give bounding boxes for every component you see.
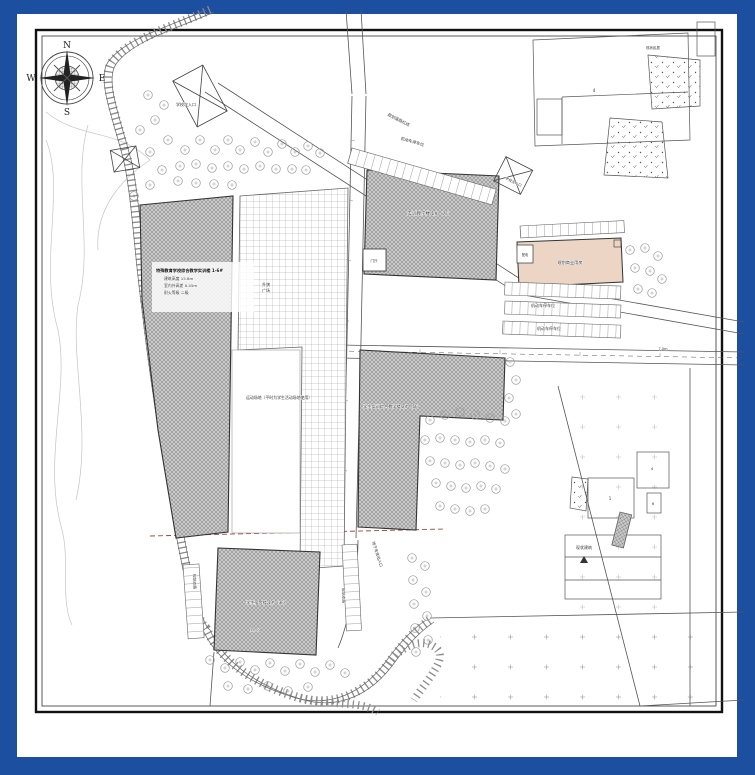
- label-parking-r2: 机动车停车位: [537, 325, 561, 331]
- blueprint-page: N S W E: [0, 0, 755, 775]
- label-annex-pink: 配电: [522, 252, 529, 257]
- label-parking-top: 机动车停车位: [400, 135, 425, 147]
- label-road-right: 规划支路: [341, 588, 347, 604]
- site-plan-svg: N S W E: [0, 0, 755, 775]
- label-road-dim: 7.0m: [659, 347, 669, 351]
- label-building-a-3: 室内外高差 0.45m: [164, 283, 197, 288]
- label-parcel-num-tr: 4: [593, 88, 596, 93]
- label-building-a-1: 特殊教育学校综合教学实训楼 1-6#: [156, 267, 223, 274]
- survey-grid-marks-2: [560, 370, 686, 610]
- compass-w: W: [26, 74, 36, 84]
- label-annex-b: 门厅: [371, 258, 379, 263]
- terrain-contours: [46, 112, 150, 625]
- existing-parcels-north: [533, 22, 715, 178]
- label-road-redline: 规划道路红线: [387, 111, 411, 127]
- sports-field: [232, 350, 300, 533]
- label-sports-field: 运动场地（平时为学生活动场地使用）: [246, 395, 312, 400]
- label-building-d: 学生宿舍楼 1#（3F）: [246, 599, 288, 606]
- label-village: 现状民居: [646, 45, 660, 50]
- label-gate-north: 学校次入口: [176, 101, 196, 107]
- label-building-pink: 规划商业用房: [557, 259, 582, 266]
- label-building-a-2: 建筑高度 15.8m: [164, 276, 193, 281]
- label-building-b: 实训教学楼 1#（7F）: [407, 210, 452, 217]
- label-garage-ramp: 地下车库出入口: [371, 541, 384, 568]
- survey-grid-marks: [440, 616, 716, 706]
- compass-e: E: [99, 74, 106, 84]
- label-d-elevation: ±0.00: [250, 628, 261, 632]
- label-plaza-2: 广场: [262, 287, 270, 293]
- label-parking-r1: 机动车停车位: [531, 302, 555, 308]
- label-building-a-4: 耐火等级 二级: [164, 290, 189, 295]
- label-existing-building: 现状建筑: [576, 544, 592, 550]
- label-building-c: 学生实训综合教学楼 2#（5F）: [363, 403, 422, 410]
- compass-n: N: [63, 41, 71, 51]
- building-training-2: [358, 350, 505, 530]
- compass-rose: N S W E: [26, 41, 105, 118]
- compass-s: S: [64, 108, 70, 118]
- label-road-left: 规划支路: [192, 574, 198, 590]
- label-parcel-num-1: 1: [609, 496, 612, 501]
- label-plaza-1: 升旗: [262, 281, 270, 287]
